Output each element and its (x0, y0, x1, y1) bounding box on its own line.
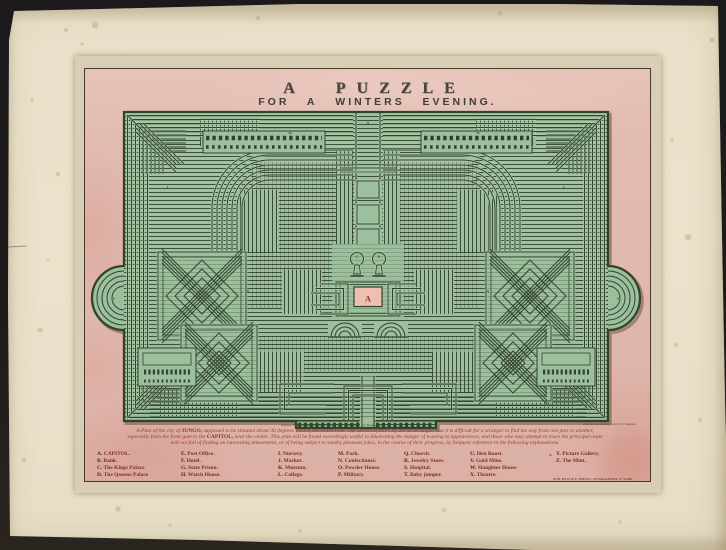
svg-text:L: L (563, 185, 565, 189)
svg-text:A: A (365, 294, 372, 304)
svg-text:L: L (167, 185, 169, 189)
svg-text:S: S (113, 297, 115, 301)
svg-text:M: M (288, 131, 291, 135)
svg-text:M: M (476, 131, 479, 135)
